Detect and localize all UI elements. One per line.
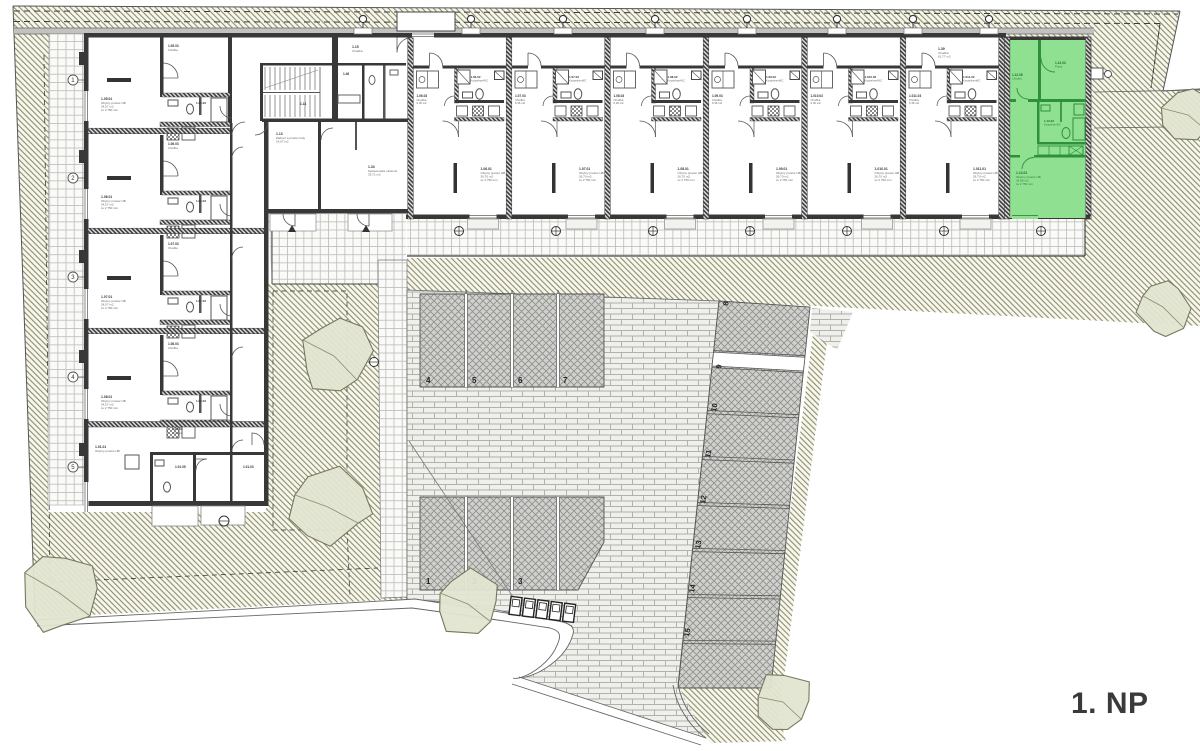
svg-text:Koupelna+WC: Koupelna+WC <box>471 78 488 82</box>
svg-text:Chodba: Chodba <box>172 431 182 435</box>
svg-text:Chodba: Chodba <box>168 346 178 350</box>
svg-text:12: 12 <box>698 495 708 505</box>
svg-text:Chodba: Chodba <box>168 146 178 150</box>
svg-text:Obytny prostor HB: Obytny prostor HB <box>95 449 120 453</box>
svg-text:1.07.02: 1.07.02 <box>569 75 579 79</box>
svg-text:Koupelna+WC: Koupelna+WC <box>766 78 783 82</box>
svg-text:Chodba: Chodba <box>168 246 178 250</box>
svg-text:Koupelna+WC: Koupelna+WC <box>963 78 980 82</box>
svg-text:sv 2 750 mm: sv 2 750 mm <box>101 406 119 410</box>
svg-text:1.05.02: 1.05.02 <box>196 101 206 105</box>
svg-text:1.46: 1.46 <box>343 72 349 76</box>
svg-text:10: 10 <box>709 403 719 413</box>
svg-text:1: 1 <box>426 577 431 586</box>
svg-text:sv 2 750 mm: sv 2 750 mm <box>481 178 499 182</box>
svg-text:Koupelna+WC: Koupelna+WC <box>1044 122 1061 126</box>
svg-text:sv 2 750 mm: sv 2 750 mm <box>101 206 119 210</box>
svg-text:Chodba: Chodba <box>1012 77 1022 81</box>
svg-text:6: 6 <box>518 376 523 385</box>
svg-text:Chodba: Chodba <box>352 49 363 53</box>
svg-text:11: 11 <box>703 449 713 458</box>
svg-text:5: 5 <box>472 376 477 385</box>
svg-text:Koupelna+WC: Koupelna+WC <box>865 78 882 82</box>
svg-text:6,36 m2: 6,36 m2 <box>909 101 920 105</box>
svg-text:6,36 m2: 6,36 m2 <box>515 101 526 105</box>
svg-text:1.07.02: 1.07.02 <box>196 299 206 303</box>
svg-text:7: 7 <box>563 376 568 385</box>
svg-text:sv 2 750 mm: sv 2 750 mm <box>776 178 794 182</box>
svg-text:sv 2 750 mm: sv 2 750 mm <box>101 108 119 112</box>
svg-text:6,36 m2: 6,36 m2 <box>614 101 625 105</box>
svg-text:6,36 m2: 6,36 m2 <box>417 101 428 105</box>
svg-text:1.08.02: 1.08.02 <box>196 399 206 403</box>
svg-text:sv 2 750 mm: sv 2 750 mm <box>101 306 119 310</box>
svg-text:sv 2 750 mm: sv 2 750 mm <box>875 178 893 182</box>
svg-text:sv 2 750 mm: sv 2 750 mm <box>579 178 597 182</box>
svg-text:1.011.02: 1.011.02 <box>963 75 975 79</box>
svg-text:33,71 m2: 33,71 m2 <box>368 173 381 177</box>
svg-text:1. NP: 1. NP <box>1071 687 1149 720</box>
svg-text:Koupelna+WC: Koupelna+WC <box>668 78 685 82</box>
svg-text:1.14: 1.14 <box>300 102 306 106</box>
svg-text:1.12.02: 1.12.02 <box>1044 119 1054 123</box>
svg-text:sv 2 750 mm: sv 2 750 mm <box>1016 182 1034 186</box>
svg-text:Pokoj: Pokoj <box>1055 65 1062 69</box>
svg-text:61,77 m2: 61,77 m2 <box>938 55 951 59</box>
svg-text:sv 2 750 mm: sv 2 750 mm <box>973 178 991 182</box>
svg-text:Koupelna+WC: Koupelna+WC <box>569 78 586 82</box>
svg-text:4: 4 <box>426 376 431 385</box>
svg-text:sv 2 750 mm: sv 2 750 mm <box>678 178 696 182</box>
svg-text:15: 15 <box>682 628 692 638</box>
svg-text:6,36 m2: 6,36 m2 <box>712 101 723 105</box>
svg-text:3: 3 <box>518 577 523 586</box>
svg-text:13: 13 <box>693 540 703 550</box>
svg-text:1.06.02: 1.06.02 <box>196 199 206 203</box>
svg-text:1.09.02: 1.09.02 <box>766 75 776 79</box>
svg-text:1.01.03: 1.01.03 <box>243 465 254 469</box>
svg-text:1.08.02: 1.08.02 <box>668 75 678 79</box>
svg-text:1.06.02: 1.06.02 <box>471 75 481 79</box>
svg-text:Chodba: Chodba <box>168 48 178 52</box>
svg-text:6,36 m2: 6,36 m2 <box>811 101 822 105</box>
svg-text:1.01.05: 1.01.05 <box>175 465 186 469</box>
svg-text:14,07 m2: 14,07 m2 <box>276 140 289 144</box>
svg-text:1.010.02: 1.010.02 <box>865 75 877 79</box>
